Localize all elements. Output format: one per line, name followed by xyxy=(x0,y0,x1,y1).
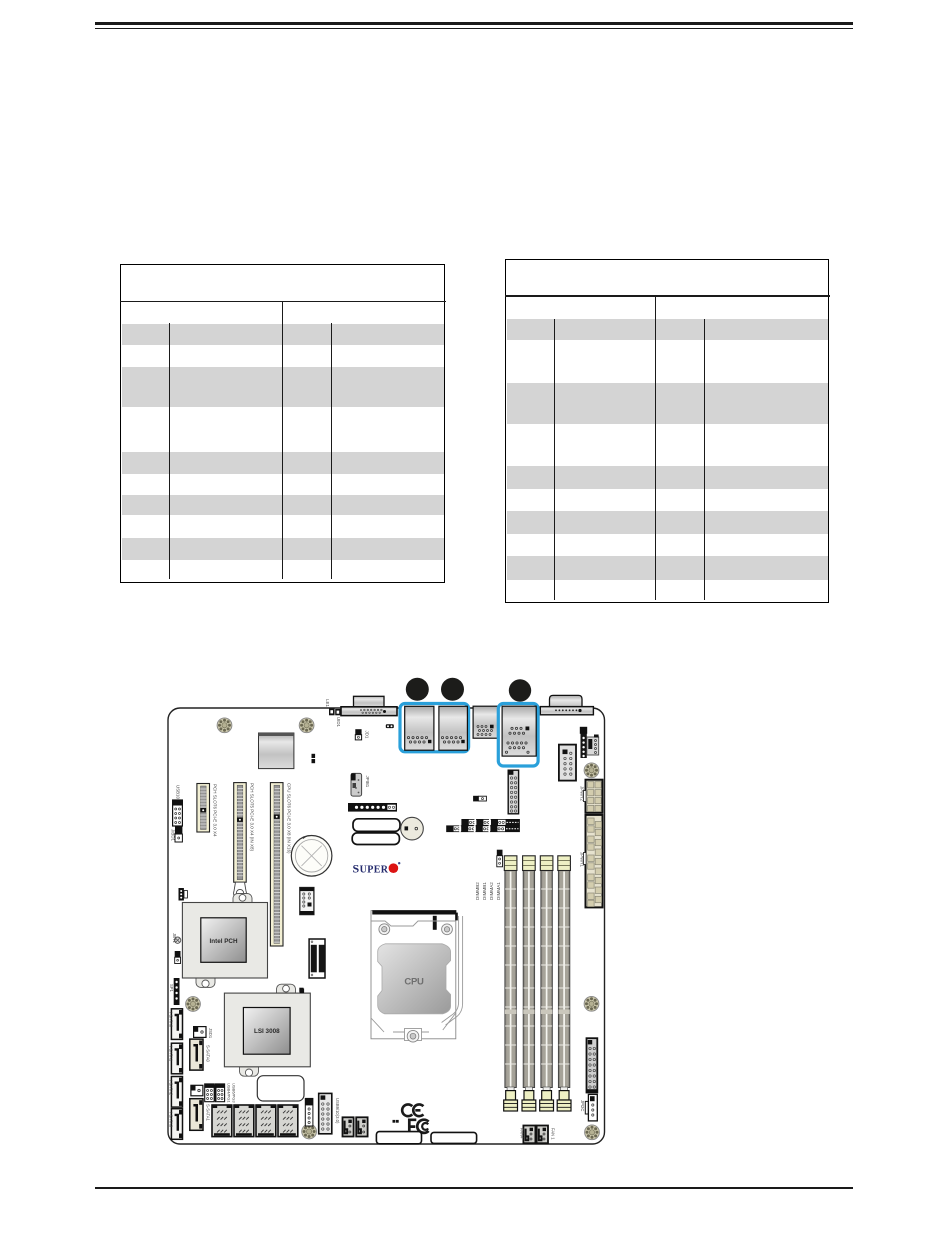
svg-text:CPU: CPU xyxy=(404,977,424,988)
svg-text:DIMMA1: DIMMA1 xyxy=(496,882,501,900)
svg-text:FAN 1: FAN 1 xyxy=(551,1128,556,1140)
svg-text:I-SATA1: I-SATA1 xyxy=(169,1046,174,1062)
svg-text:DIMMB2: DIMMB2 xyxy=(475,882,480,900)
svg-text:Intel PCH: Intel PCH xyxy=(210,938,238,945)
svg-text:FAN4: FAN4 xyxy=(520,1128,525,1139)
svg-text:JPIB1: JPIB1 xyxy=(365,776,370,788)
svg-text:JPWR1: JPWR1 xyxy=(580,852,585,867)
svg-text:JD1: JD1 xyxy=(365,731,370,739)
svg-text:LSI 3008: LSI 3008 xyxy=(254,1028,280,1035)
svg-text:JSD1: JSD1 xyxy=(208,1028,213,1039)
svg-text:SUPER: SUPER xyxy=(353,862,389,876)
svg-text:JPWR2: JPWR2 xyxy=(580,786,585,801)
svg-text:USB4/PG1: USB4/PG1 xyxy=(227,1083,232,1103)
svg-text:PCH SLOT5 PCI-E 3.0 X4 (IN X8): PCH SLOT5 PCI-E 3.0 X4 (IN X8) xyxy=(250,783,255,852)
svg-text:S-SATA1: S-SATA1 xyxy=(206,1104,211,1122)
svg-text:DIMMA2: DIMMA2 xyxy=(489,882,494,900)
svg-text:JPI2C: JPI2C xyxy=(580,1100,585,1111)
svg-text:UID1: UID1 xyxy=(336,717,341,728)
svg-text:USB10: USB10 xyxy=(176,785,181,799)
svg-text:USB6/PG3: USB6/PG3 xyxy=(232,1083,237,1103)
svg-text:USB9/10(3.0): USB9/10(3.0) xyxy=(335,1098,340,1124)
svg-text:JIBD1: JIBD1 xyxy=(171,829,176,842)
svg-text:I-SATA3: I-SATA3 xyxy=(169,1112,174,1128)
svg-text:I-SATA2: I-SATA2 xyxy=(169,1080,174,1096)
svg-text:I-SATA0: I-SATA0 xyxy=(169,1012,174,1028)
svg-text:LE1: LE1 xyxy=(325,699,330,707)
svg-text:S-SATA0: S-SATA0 xyxy=(206,1045,211,1063)
svg-text:JBT1: JBT1 xyxy=(172,933,177,943)
svg-text:SP1: SP1 xyxy=(169,984,174,993)
svg-text:CPU SLOT6 PCI-E 3.0 X8 (IN X16: CPU SLOT6 PCI-E 3.0 X8 (IN X16) xyxy=(287,783,292,854)
svg-text:DIMMB1: DIMMB1 xyxy=(482,882,487,900)
svg-text:PCH SLOT6 PCI-E 3.0 X4: PCH SLOT6 PCI-E 3.0 X4 xyxy=(213,784,218,837)
